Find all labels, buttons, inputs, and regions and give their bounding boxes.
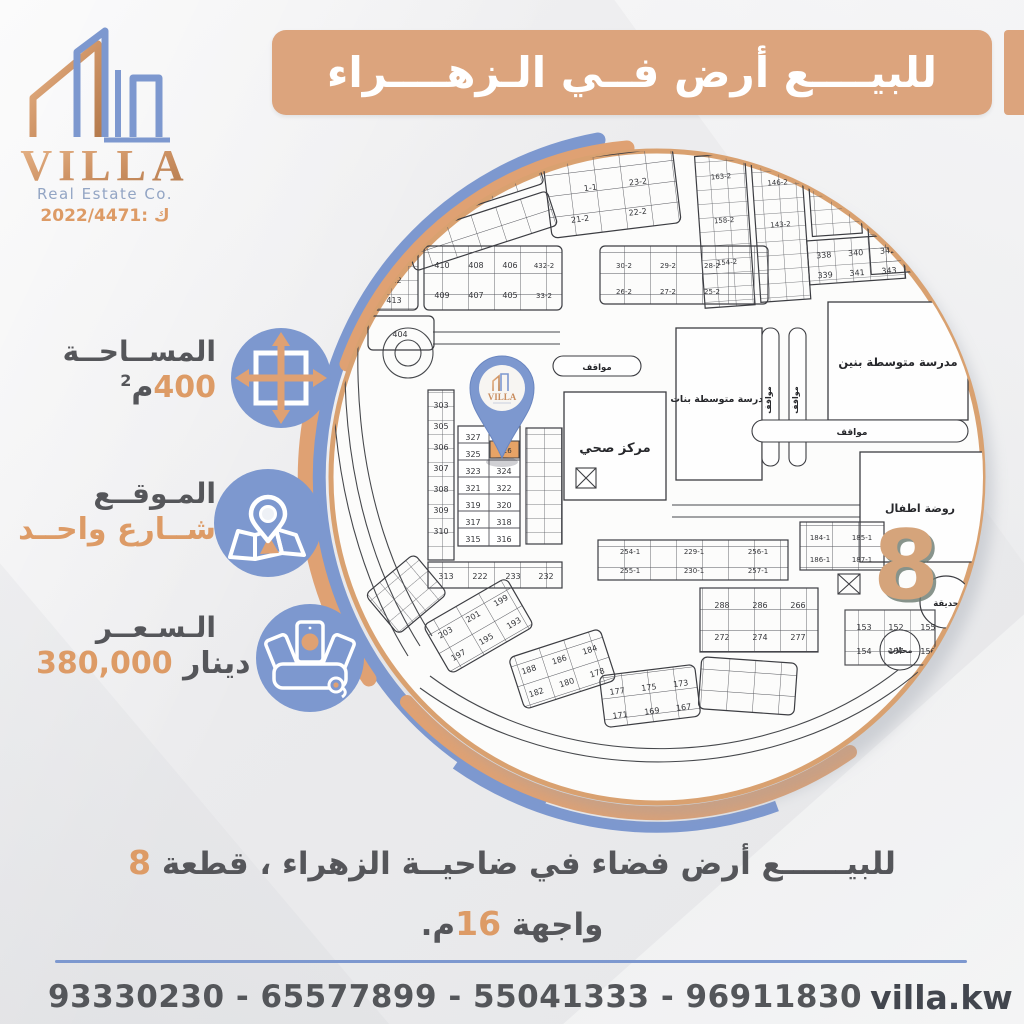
instagram-handle[interactable]: villa.kw (870, 978, 1013, 1017)
plot-number: 26-2 (616, 288, 632, 296)
plot-number: 222 (472, 572, 487, 581)
plot-number: 410 (434, 261, 449, 270)
plot-number: 340 (848, 248, 864, 258)
plot-number: 163-2 (711, 172, 732, 181)
plot-number: 146-2 (767, 178, 788, 187)
plot-number: 413 (386, 296, 401, 305)
plot-number: 232 (538, 572, 553, 581)
plot-number: 169 (644, 706, 660, 717)
plot-number: 233 (505, 572, 520, 581)
plot-number: 308 (433, 485, 448, 494)
boys-school-label: مدرسة متوسطة بنين (838, 355, 957, 370)
plot-number: 1-1 (583, 183, 597, 194)
plot-number: 313 (438, 572, 453, 581)
plot-number: 143-2 (770, 220, 791, 229)
plot-number: 186-1 (810, 556, 830, 564)
info-area: المســاحــة 400م2 (36, 336, 216, 407)
plot-number: 315 (465, 535, 480, 544)
area-label: المســاحــة (36, 336, 216, 368)
plot-number: 322 (496, 484, 511, 493)
listing-description: للبيــــــع أرض فضاء في ضاحيــة الزهراء … (60, 832, 964, 955)
location-pin-icon (214, 469, 322, 577)
plot-number: 310 (433, 527, 448, 536)
flyer-canvas: { "logo": { "name": "VILLA", "subtitle":… (0, 0, 1024, 1024)
plot-number: 323 (465, 467, 480, 476)
plot-number: 343 (881, 266, 897, 276)
plot-number: 318 (496, 518, 511, 527)
plot-number: 305 (433, 422, 448, 431)
plot-number: 256-1 (748, 548, 768, 556)
footer-divider (55, 960, 967, 963)
svg-text:8: 8 (873, 511, 939, 621)
plot-number: 341 (849, 268, 865, 278)
plot-number: 274 (752, 633, 767, 642)
plot-number: 254-1 (620, 548, 640, 556)
plot-number: 27-2 (660, 288, 676, 296)
map-block: 177 175 173 171 169 167 (599, 664, 701, 727)
plot-number: 177 (609, 686, 625, 697)
parking-label: مواقف (764, 386, 773, 414)
plot-number: 157 (888, 647, 903, 656)
girls-school-label: مدرسة متوسطة بنات (670, 394, 769, 405)
plot-number: 316 (496, 535, 511, 544)
logo-license: 2022/4471: ك (40, 206, 169, 226)
block-number-8: 8 8 (873, 511, 942, 624)
plot-number: 286 (752, 601, 767, 610)
plot-number: 185-1 (852, 534, 872, 542)
plot-number: 175 (641, 682, 657, 693)
plot-number: 404 (392, 330, 407, 339)
plot-number: 229-1 (684, 548, 704, 556)
description-line-1: للبيــــــع أرض فضاء في ضاحيــة الزهراء … (60, 832, 964, 893)
plot-number: 406 (502, 261, 517, 270)
plot-number: 277 (790, 633, 805, 642)
plot-number: 324 (496, 467, 511, 476)
plot-number: 307 (433, 464, 448, 473)
plot-number: 30-2 (616, 262, 632, 270)
plot-number: 405 (502, 291, 517, 300)
plot-number: 25-2 (704, 288, 720, 296)
plot-number: 266 (790, 601, 805, 610)
description-line-2: واجهة 16م. (60, 893, 964, 954)
parking-label: مواقف (582, 363, 611, 373)
plot-number: 33-2 (536, 292, 552, 300)
plot-number: 325 (465, 450, 480, 459)
page-title: للبيــــع أرض فــي الـزهــــراء (327, 48, 937, 97)
plot-number: 407 (468, 291, 483, 300)
plot-number: 317 (465, 518, 480, 527)
phone-numbers[interactable]: 93330230 - 65577899 - 55041333 - 9691183… (48, 979, 862, 1015)
parking-label: مواقف (791, 386, 800, 414)
plot-number: 255-1 (620, 567, 640, 575)
plot-number: 306 (433, 443, 448, 452)
price-value: 380,000 دينار (36, 644, 216, 683)
plot-number: 28-2 (704, 262, 720, 270)
area-expand-icon (231, 328, 331, 428)
plot-number: 408 (468, 261, 483, 270)
plot-number: 321 (465, 484, 480, 493)
plot-number: 167 (676, 702, 692, 713)
plot-number: 327 (465, 433, 480, 442)
plot-number: 303 (433, 401, 448, 410)
logo-building-orange-icon (33, 44, 98, 137)
plot-number: 409 (434, 291, 449, 300)
logo-subtitle: Real Estate Co. (37, 185, 173, 203)
location-label: المـوقــع (36, 478, 216, 510)
cash-icon (256, 604, 364, 712)
plot-number: 257-1 (748, 567, 768, 575)
info-location: المـوقــع شــارع واحــد (36, 478, 216, 549)
health-center-label: مركز صحي (579, 441, 650, 456)
plot-number: 153 (856, 623, 871, 632)
company-logo: VILLA Real Estate Co. 2022/4471: ك (20, 31, 190, 226)
title-banner-strip (1004, 30, 1024, 115)
plot-number: 29-2 (660, 262, 676, 270)
plot-number: 320 (496, 501, 511, 510)
plot-number: 187-1 (852, 556, 872, 564)
plot-number: 338 (816, 250, 832, 260)
map-block (698, 657, 797, 716)
plot-number: 152 (888, 623, 903, 632)
pin-logo-text: VILLA (488, 392, 517, 402)
plot-number: 309 (433, 506, 448, 515)
plot-number: 342-2 (823, 174, 844, 183)
location-value: شــارع واحــد (36, 510, 216, 549)
plot-number: 288 (714, 601, 729, 610)
plot-number: 432-2 (534, 262, 554, 270)
plot-number: 272 (714, 633, 729, 642)
title-banner: للبيــــع أرض فــي الـزهــــراء (272, 30, 992, 115)
parking-label: مواقف (837, 428, 868, 438)
plot-number: 184-1 (810, 534, 830, 542)
plot-number: 173 (673, 678, 689, 689)
info-price: الـسـعــر 380,000 دينار (36, 612, 216, 683)
plot-number: 319 (465, 501, 480, 510)
area-value: 400م2 (36, 368, 216, 407)
plot-number: 230-1 (684, 567, 704, 575)
price-label: الـسـعــر (36, 612, 216, 644)
footer-bar: 93330230 - 65577899 - 55041333 - 9691183… (36, 972, 1004, 1022)
plot-number: 339 (817, 270, 833, 280)
plot-number: 158-2 (714, 216, 735, 225)
plot-number: 154 (856, 647, 871, 656)
plot-number: 171 (612, 710, 628, 721)
logo-name: VILLA (20, 141, 189, 190)
plot-number: 155 (920, 623, 935, 632)
